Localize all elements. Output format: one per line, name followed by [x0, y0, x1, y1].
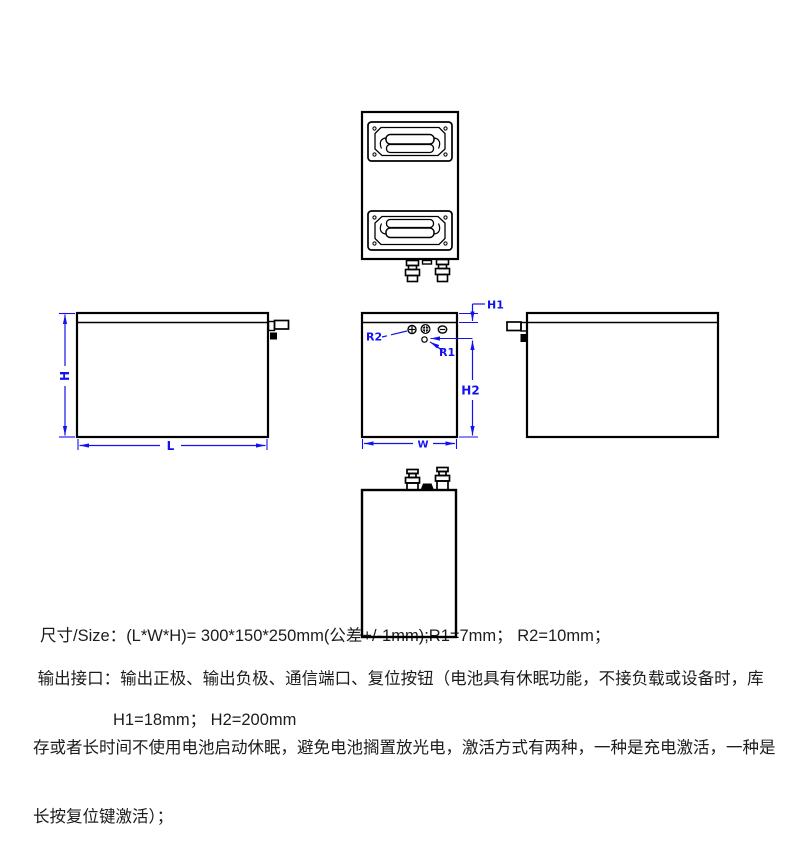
comm-port-stub-icon — [421, 484, 435, 491]
interface-line-1: 输出接口：输出正极、输出负极、通信端口、复位按钮（电池具有休眠功能，不接负载或设… — [33, 668, 776, 691]
dim-H: H — [58, 314, 75, 438]
positive-terminal-icon — [408, 326, 416, 334]
output-connector-icon — [436, 468, 450, 491]
side-connector-icon — [269, 321, 289, 340]
dim-label-H1: H1 — [487, 299, 504, 312]
dim-W: W — [363, 439, 457, 451]
reset-button-icon — [422, 337, 427, 342]
comm-port-stub-icon — [423, 261, 432, 265]
front-view-outline — [362, 313, 457, 437]
dim-H2: H2 — [431, 339, 480, 438]
dim-label-L: L — [167, 439, 175, 453]
output-connector-icon — [436, 260, 450, 282]
negative-terminal-icon — [438, 326, 446, 333]
side-view-left-outline — [77, 313, 268, 437]
top-view — [362, 112, 458, 282]
dim-R2: R2 — [366, 331, 407, 344]
front-view — [362, 313, 457, 437]
dim-label-H2: H2 — [461, 384, 479, 398]
comm-port-icon — [421, 325, 430, 334]
interface-line-2: 存或者长时间不使用电池启动休眠，避免电池搁置放光电，激活方式有两种，一种是充电激… — [33, 737, 776, 760]
interface-description-block: 输出接口：输出正极、输出负极、通信端口、复位按钮（电池具有休眠功能，不接负载或设… — [33, 622, 776, 852]
handle-icon — [368, 211, 452, 250]
dim-H1: H1 — [459, 299, 504, 323]
dimension-annotations: H L H1 H2 — [58, 299, 504, 454]
dim-label-H: H — [58, 371, 72, 381]
top-view-outline — [362, 112, 458, 259]
side-connector-icon — [507, 322, 527, 342]
dim-label-R2: R2 — [366, 331, 382, 344]
side-view-right-outline — [527, 313, 718, 437]
output-connector-icon — [406, 470, 420, 491]
handle-icon — [368, 122, 452, 161]
dim-L: L — [78, 439, 267, 453]
dim-R1: R1 — [430, 342, 455, 359]
side-view-left — [77, 313, 289, 437]
interface-line-3: 长按复位键激活）； — [33, 806, 776, 829]
dim-label-R1: R1 — [439, 346, 455, 359]
dim-label-W: W — [417, 440, 428, 451]
side-view-right — [507, 313, 718, 437]
output-connector-icon — [406, 261, 420, 282]
